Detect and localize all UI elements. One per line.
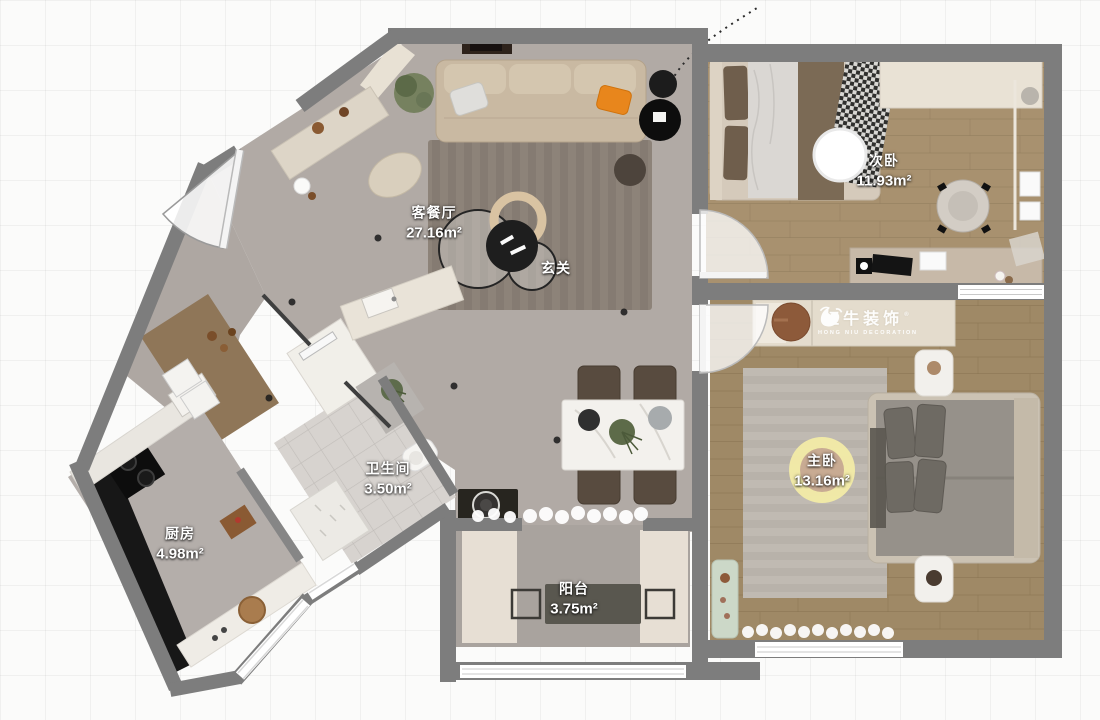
- pouf[interactable]: [614, 154, 646, 186]
- window-balcony: [460, 665, 686, 678]
- wardrobe-second[interactable]: [880, 60, 1042, 108]
- nightstand-top[interactable]: [915, 350, 953, 396]
- floorplan-canvas: 客餐厅 27.16m² 玄关 次卧 11.93m² 主卧 13.16m² 卫生间…: [0, 0, 1100, 720]
- balcony-table[interactable]: [545, 584, 641, 624]
- window-bedroom-master: [755, 642, 903, 657]
- bed-master[interactable]: [868, 393, 1040, 563]
- ceiling-lamp-second[interactable]: [814, 129, 866, 181]
- wardrobe-master[interactable]: [753, 300, 955, 346]
- balcony-side-panel-right: [640, 530, 688, 643]
- plant[interactable]: [394, 73, 434, 113]
- pet-toy: [1005, 276, 1013, 284]
- plant-stand-master[interactable]: [712, 560, 738, 638]
- dressing-stool: [772, 303, 810, 341]
- pet-toy: [995, 271, 1005, 281]
- plate: [648, 406, 672, 430]
- balcony-side-panel-left: [462, 530, 517, 643]
- window-bedroom-second: [958, 285, 1044, 299]
- nightstand-bottom[interactable]: [915, 556, 953, 602]
- ceiling-lamp-master[interactable]: [800, 448, 844, 492]
- wood-bowl[interactable]: [239, 597, 265, 623]
- floorplan-drawing: [0, 0, 1100, 720]
- bowl: [578, 409, 600, 431]
- sofa[interactable]: [436, 60, 646, 142]
- bed-second[interactable]: [710, 50, 899, 200]
